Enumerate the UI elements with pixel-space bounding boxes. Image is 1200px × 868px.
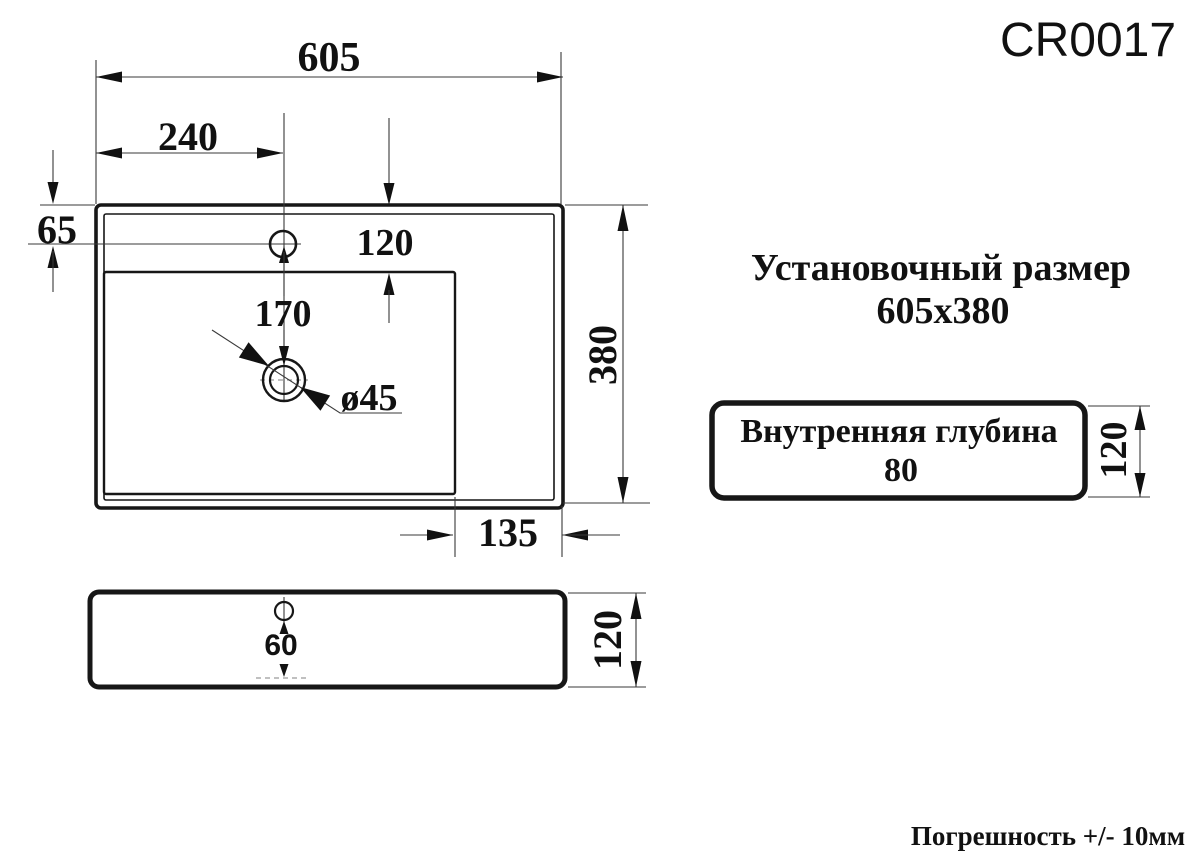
dim-hole-drop: 60 (256, 621, 310, 678)
info-panel: CR0017 Установочный размер 605x380 Внутр… (712, 14, 1185, 851)
installation-size-value: 605x380 (877, 290, 1010, 332)
arrowhead (618, 477, 629, 503)
arrowhead (279, 346, 289, 366)
dim-label-box-height: 120 (1093, 422, 1135, 479)
dim-drain-diameter: ø45 (212, 330, 402, 419)
installation-size-title: Установочный размер (751, 247, 1131, 289)
arrowhead (631, 593, 642, 619)
dim-label-hole-offset-left: 240 (158, 114, 218, 159)
arrowhead (1135, 406, 1146, 430)
dim-deck-to-basin: 120 (357, 118, 414, 323)
dim-label-hole-drop: 60 (264, 629, 297, 662)
arrowhead (48, 182, 59, 204)
inner-depth-box: Внутренняя глубина 80 (712, 403, 1085, 498)
dim-total-width: 605 (96, 35, 563, 83)
arrowhead (384, 183, 395, 205)
drawing-page: 605 240 65 120 170 (0, 0, 1200, 868)
inner-depth-label: Внутренняя глубина (740, 413, 1057, 450)
arrowhead (239, 342, 274, 373)
dim-hole-to-drain: 170 (255, 246, 312, 366)
side-view: 60 120 (90, 592, 646, 687)
technical-drawing: 605 240 65 120 170 (0, 0, 1200, 868)
arrowhead (295, 379, 330, 410)
dim-label-side-shelf: 135 (478, 510, 538, 555)
arrowhead (618, 205, 629, 231)
extension-lines (40, 52, 650, 557)
dim-label-body-height: 120 (585, 610, 630, 670)
top-view: 605 240 65 120 170 (28, 35, 650, 557)
dim-label-total-width: 605 (298, 35, 361, 81)
arrowhead (96, 72, 122, 83)
dim-hole-offset-top: 65 (37, 150, 77, 292)
dim-label-drain-diameter: ø45 (341, 377, 398, 419)
dim-body-height: 120 (568, 593, 646, 687)
arrowhead (537, 72, 563, 83)
dim-hole-offset-left: 240 (96, 114, 283, 159)
inner-depth-value: 80 (884, 452, 918, 489)
dim-label-hole-offset-top: 65 (37, 207, 77, 252)
arrowhead (257, 148, 283, 159)
tolerance-note: Погрешность +/- 10мм (911, 821, 1185, 851)
dim-label-deck-to-basin: 120 (357, 222, 414, 264)
side-body-outline (90, 592, 565, 687)
arrowhead (96, 148, 122, 159)
dim-side-shelf: 135 (400, 510, 620, 555)
dim-total-depth: 380 (580, 205, 629, 503)
dim-label-total-depth: 380 (580, 325, 625, 385)
arrowhead (427, 530, 453, 541)
model-code: CR0017 (1000, 14, 1176, 67)
sink-inner-outline (104, 214, 554, 500)
dim-box-height: 120 (1088, 406, 1150, 497)
dim-label-hole-to-drain: 170 (255, 293, 312, 335)
arrowhead (631, 661, 642, 687)
arrowhead (280, 664, 289, 677)
sink-outer-outline (96, 205, 563, 508)
arrowhead (1135, 473, 1146, 497)
